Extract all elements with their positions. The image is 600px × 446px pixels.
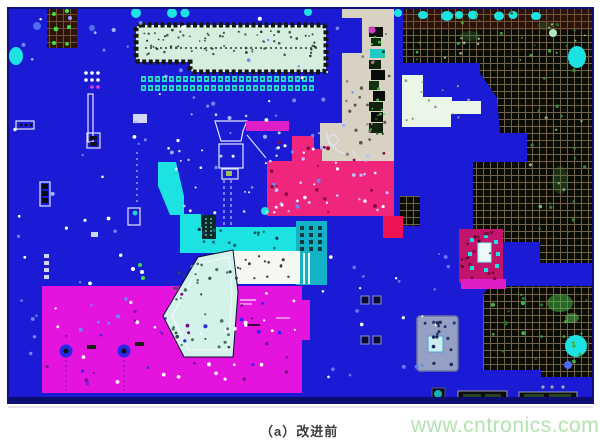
figure-caption: （a）改进前 <box>260 421 338 440</box>
red-block <box>383 216 403 238</box>
watermark-text: www.cntronics.com <box>411 414 599 438</box>
ground-plane-hatch-island <box>483 286 593 377</box>
magenta-bar-right <box>461 279 506 289</box>
grid-component-top-left <box>47 8 77 48</box>
magenta-pad <box>368 26 375 33</box>
pcb-layout-image <box>0 0 600 412</box>
crimson-bga-component <box>459 229 503 283</box>
magenta-bar-center <box>246 121 289 131</box>
dark-bundle <box>202 215 216 239</box>
article-figure-page: （a）改进前 www.cntronics.com <box>0 0 600 446</box>
